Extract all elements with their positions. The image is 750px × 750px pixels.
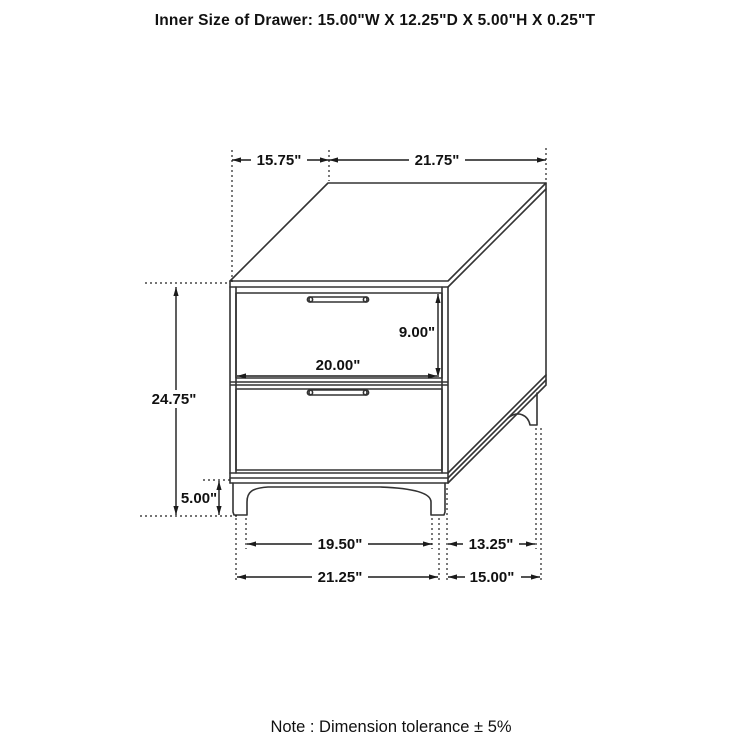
dim-leg-height-label: 5.00" <box>181 490 217 507</box>
top-face <box>230 183 546 281</box>
cabinet-drawing <box>230 183 546 515</box>
side-bottom-edge <box>448 385 546 483</box>
nightstand-dimension-diagram: 15.75" 21.75" 24.75" 5.00" 9.00" 20.00" … <box>0 0 750 750</box>
drawer-front-bottom <box>236 389 442 470</box>
dim-drawer-width-label: 20.00" <box>316 357 361 374</box>
drawer-handle-bottom <box>307 390 368 395</box>
top-face-side-edge <box>448 189 546 287</box>
dim-side-leg-span-label: 13.25" <box>469 536 514 553</box>
dim-drawer-height-label: 9.00" <box>399 324 435 341</box>
dim-base-depth-label: 15.00" <box>470 569 515 586</box>
bottom-band-side <box>448 375 546 478</box>
dim-top-width-label: 21.75" <box>415 152 460 169</box>
drawer-handle-top <box>307 297 368 302</box>
front-legs-apron <box>233 483 445 515</box>
dim-base-width-label: 21.25" <box>318 569 363 586</box>
page: { "title": "Inner Size of Drawer: 15.00\… <box>0 0 750 750</box>
tolerance-note: Note : Dimension tolerance ± 5% <box>16 718 750 737</box>
drawer-divider-rail <box>231 382 447 385</box>
bottom-band-front <box>230 473 448 478</box>
dim-top-depth-label: 15.75" <box>257 152 302 169</box>
dimension-labels: 15.75" 21.75" 24.75" 5.00" 9.00" 20.00" … <box>152 152 515 586</box>
dim-front-leg-span-label: 19.50" <box>318 536 363 553</box>
dimension-lines <box>176 160 546 577</box>
dim-overall-height-label: 24.75" <box>152 391 197 408</box>
